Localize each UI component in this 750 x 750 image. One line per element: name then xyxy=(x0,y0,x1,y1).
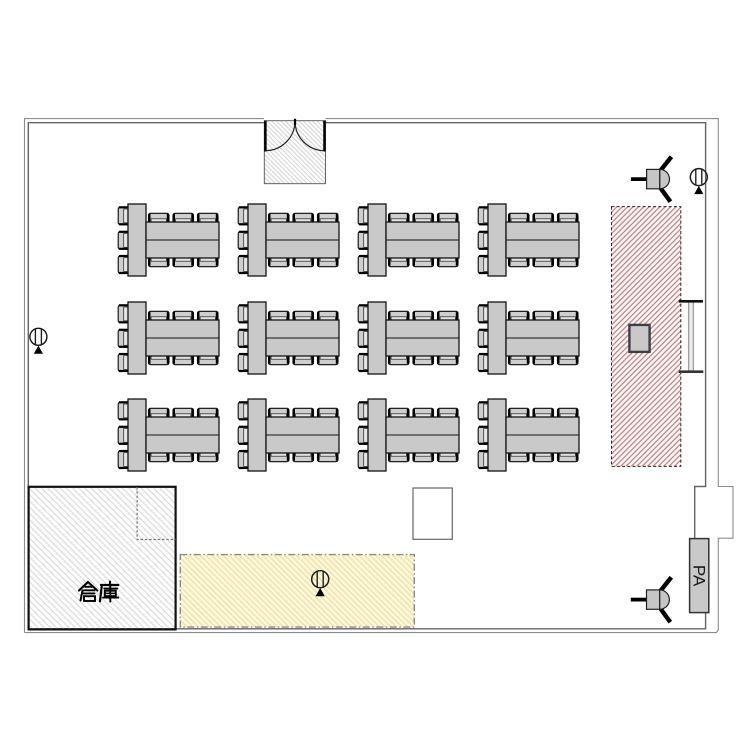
svg-text:PA: PA xyxy=(690,565,709,587)
